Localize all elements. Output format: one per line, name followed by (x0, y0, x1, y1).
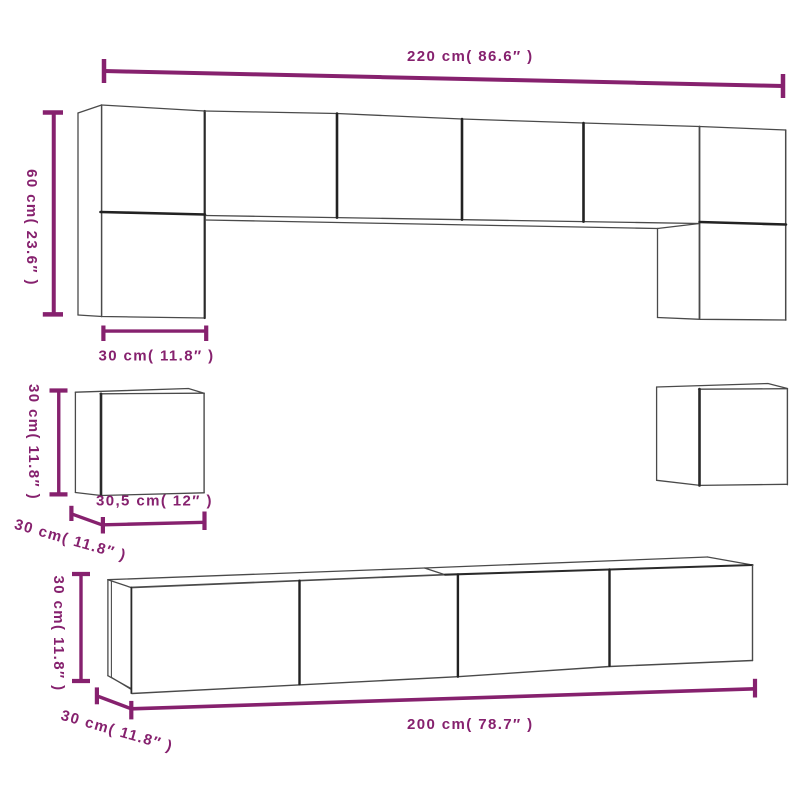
svg-text:220 cm( 86.6″ ): 220 cm( 86.6″ ) (407, 48, 534, 65)
svg-text:30 cm( 11.8″ ): 30 cm( 11.8″ ) (50, 575, 67, 691)
svg-text:200 cm( 78.7″ ): 200 cm( 78.7″ ) (407, 716, 534, 733)
svg-text:30,5 cm( 12″ ): 30,5 cm( 12″ ) (96, 493, 213, 510)
svg-text:30 cm( 11.8″ ): 30 cm( 11.8″ ) (99, 348, 215, 365)
svg-text:30 cm( 11.8″ ): 30 cm( 11.8″ ) (25, 384, 42, 500)
svg-text:60 cm( 23.6″ ): 60 cm( 23.6″ ) (23, 169, 40, 286)
